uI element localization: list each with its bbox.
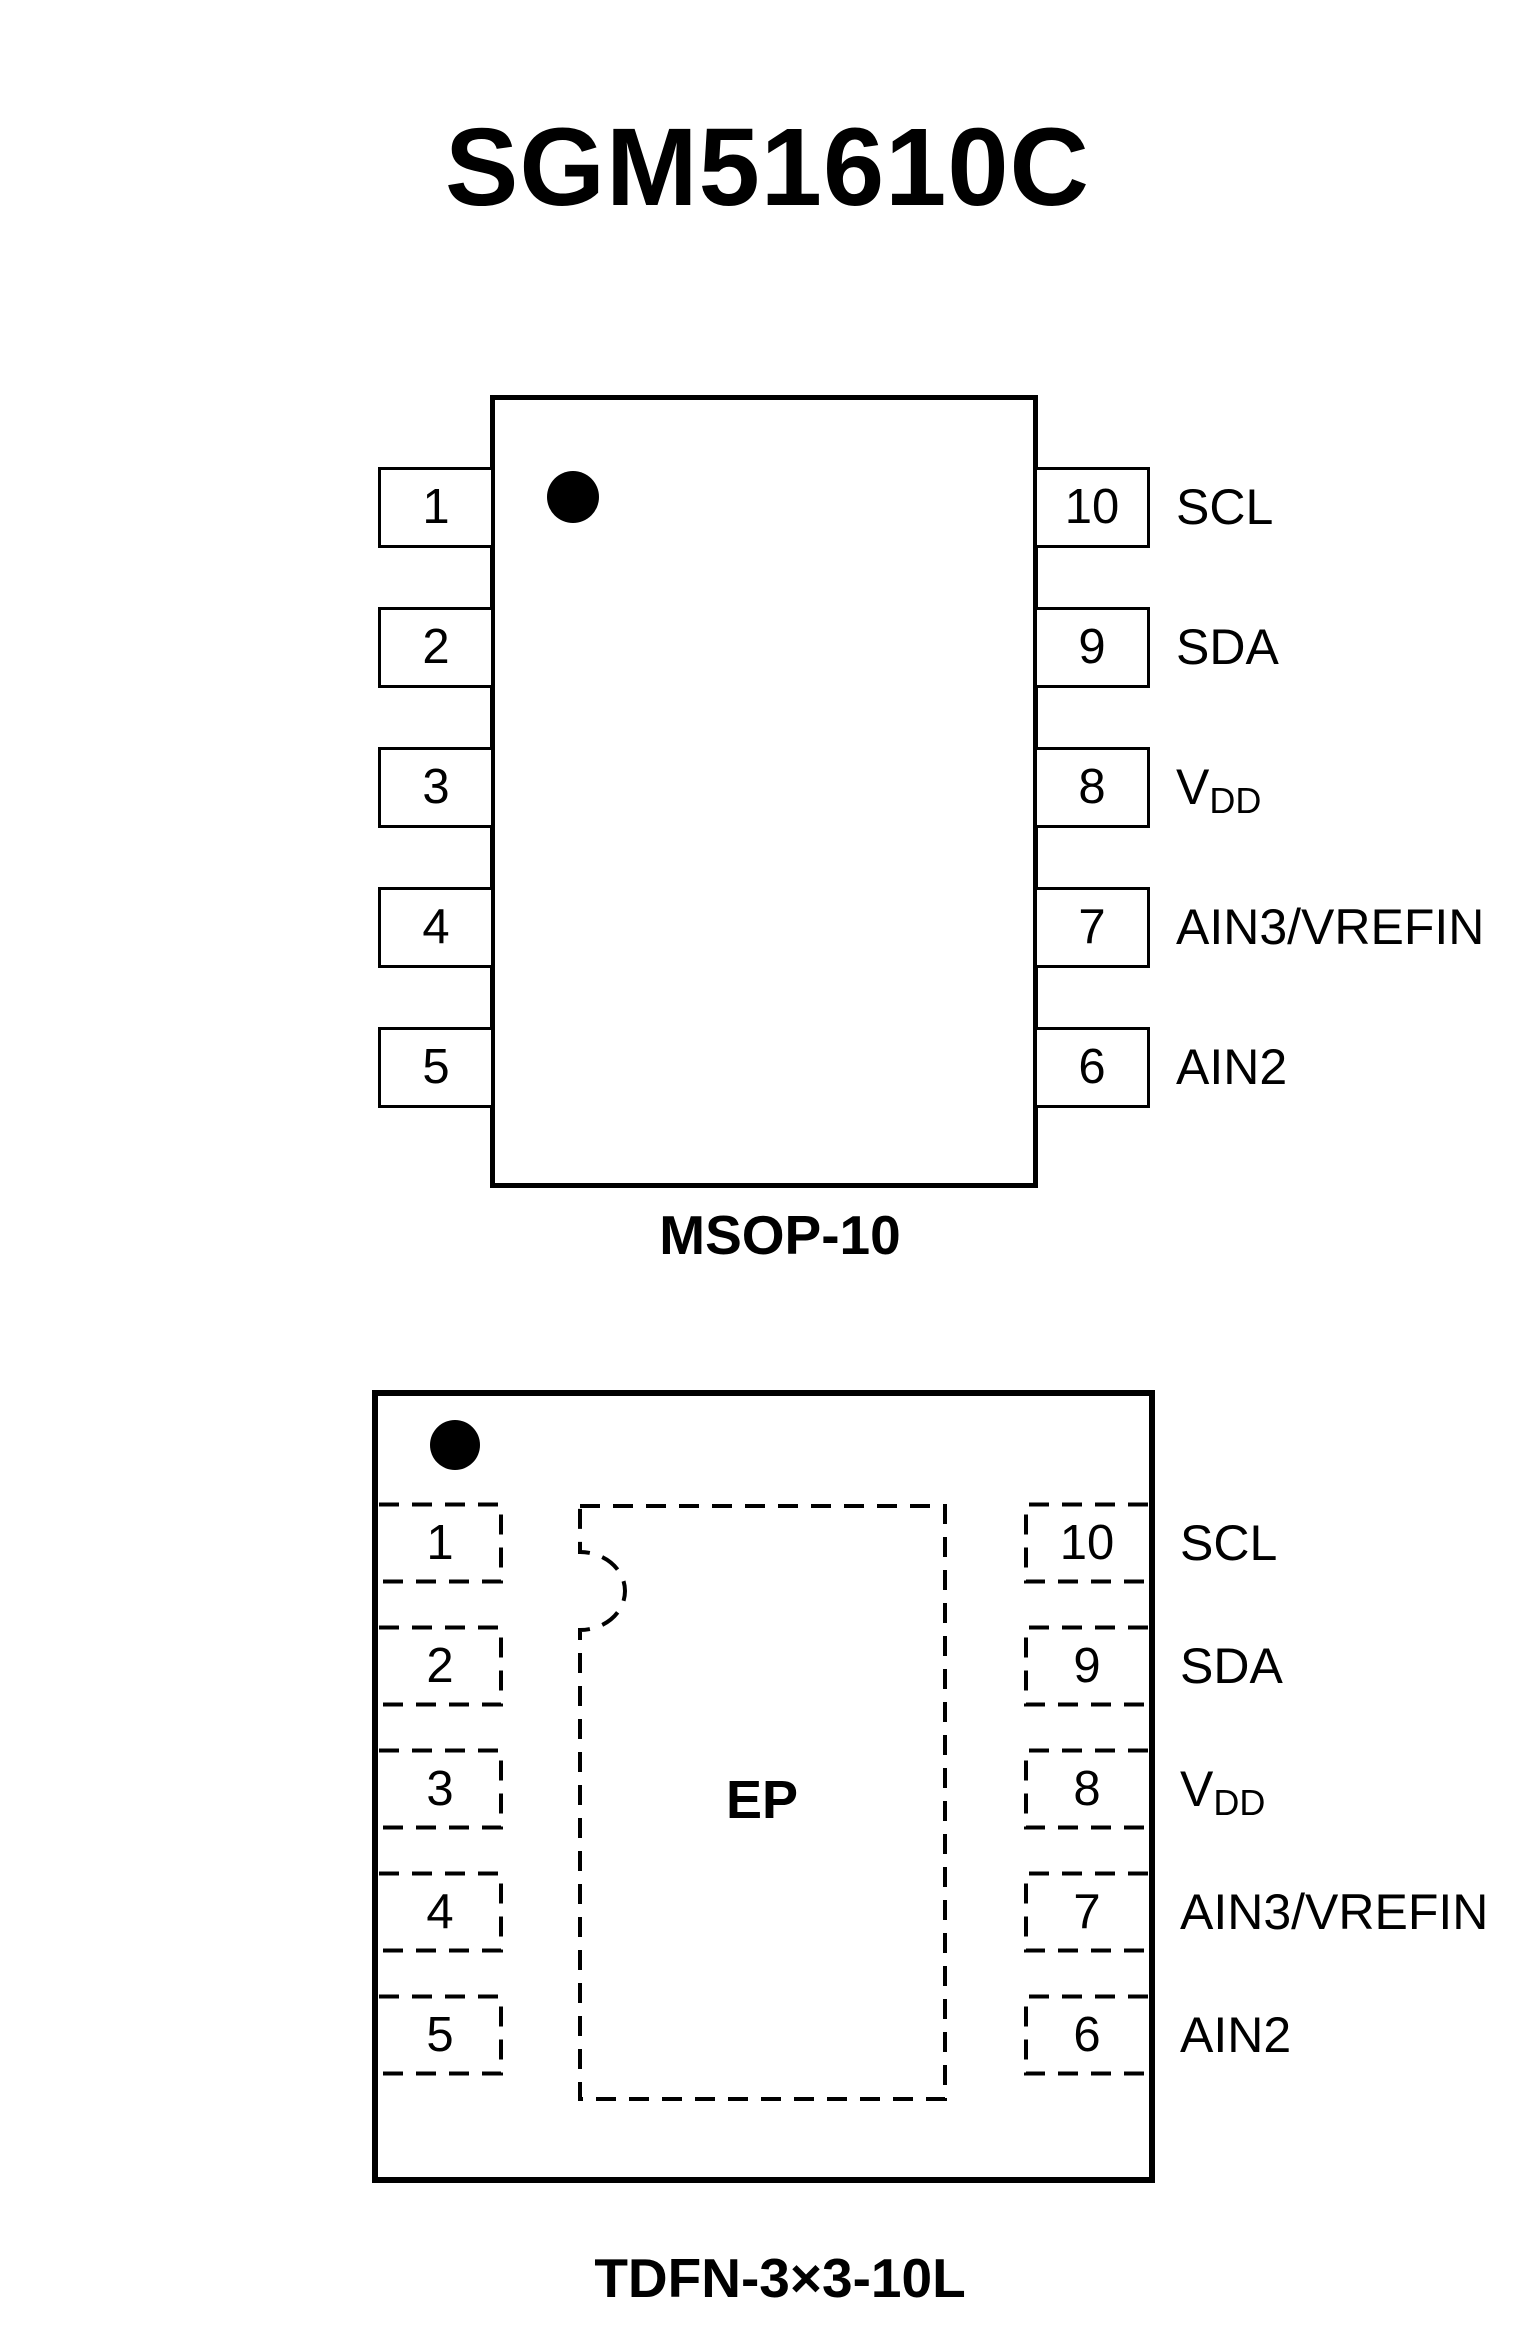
msop10-pin-2-number: 2 (378, 619, 494, 675)
pin-label-text: SCL (1180, 1515, 1277, 1571)
pin-label-text: SDA (1176, 619, 1279, 675)
msop10-pin-6-number: 6 (1034, 1039, 1150, 1095)
msop10-pin-3-number: 3 (378, 759, 494, 815)
pin-label-subscript: DD (1209, 780, 1261, 821)
tdfn-pin-9-label: SDA (1180, 1638, 1283, 1694)
tdfn-pin-2-number: 2 (379, 1638, 501, 1694)
msop10-caption: MSOP-10 (480, 1205, 1080, 1265)
tdfn-pin-7-label: AIN3/VREFIN (1180, 1884, 1488, 1940)
tdfn-pin-10-number: 10 (1026, 1515, 1148, 1571)
tdfn-pin1-indicator-dot (430, 1420, 480, 1470)
pin-label-text: AIN2 (1180, 2007, 1291, 2063)
msop10-pin-9-number: 9 (1034, 619, 1150, 675)
msop10-pin-6-label: AIN2 (1176, 1039, 1287, 1095)
msop10-pin-8-number: 8 (1034, 759, 1150, 815)
tdfn-pin-5-number: 5 (379, 2007, 501, 2063)
msop10-pin-10-number: 10 (1034, 479, 1150, 535)
pin-label-subscript: DD (1213, 1782, 1265, 1823)
msop10-pin-5-number: 5 (378, 1039, 494, 1095)
pin-label-text: V (1180, 1761, 1213, 1817)
chip-title: SGM51610C (0, 106, 1535, 230)
msop10-pin-1-number: 1 (378, 479, 494, 535)
tdfn-pin-6-number: 6 (1026, 2007, 1148, 2063)
pin-label-text: AIN2 (1176, 1039, 1287, 1095)
tdfn-pin-3-number: 3 (379, 1761, 501, 1817)
tdfn-pin-10-label: SCL (1180, 1515, 1277, 1571)
tdfn-pin-7-number: 7 (1026, 1884, 1148, 1940)
tdfn-pin-1-number: 1 (379, 1515, 501, 1571)
datasheet-pinout-page: SGM51610C 1ADDR2ALERT/RDY3GND4AIN05AIN11… (0, 0, 1535, 2342)
tdfn-pin-6-label: AIN2 (1180, 2007, 1291, 2063)
ep-label: EP (662, 1770, 862, 1830)
pin-label-text: SDA (1180, 1638, 1283, 1694)
msop10-pin-7-label: AIN3/VREFIN (1176, 899, 1484, 955)
tdfn-caption: TDFN-3×3-10L (480, 2248, 1080, 2308)
msop10-pin-7-number: 7 (1034, 899, 1150, 955)
msop10-pin-10-label: SCL (1176, 479, 1273, 535)
pin-label-text: SCL (1176, 479, 1273, 535)
tdfn-pin-4-number: 4 (379, 1884, 501, 1940)
pin-label-text: AIN3/VREFIN (1176, 899, 1484, 955)
tdfn-pin-9-number: 9 (1026, 1638, 1148, 1694)
pin-label-text: AIN3/VREFIN (1180, 1884, 1488, 1940)
pin-label-text: V (1176, 759, 1209, 815)
msop10-pin1-indicator-dot (547, 471, 599, 523)
tdfn-pin-8-label: VDD (1180, 1761, 1265, 1817)
msop10-pin-9-label: SDA (1176, 619, 1279, 675)
msop10-pin-4-number: 4 (378, 899, 494, 955)
tdfn-pin-8-number: 8 (1026, 1761, 1148, 1817)
msop10-pin-8-label: VDD (1176, 759, 1261, 815)
